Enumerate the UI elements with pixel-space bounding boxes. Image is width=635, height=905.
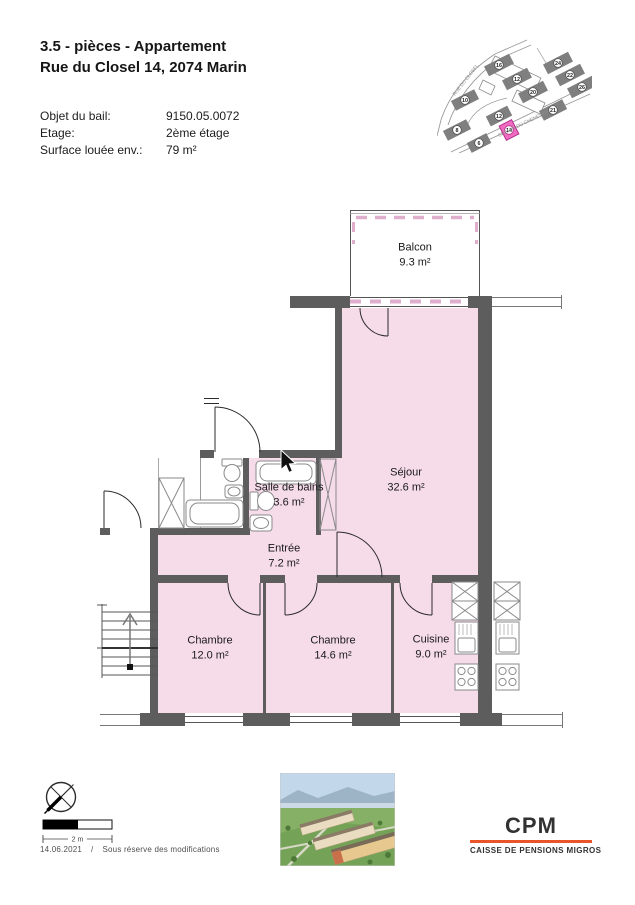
building-aerial-photo [280,773,395,866]
cpm-logo-subtitle: CAISSE DE PENSIONS MIGROS [470,846,592,855]
north-compass-icon [38,779,84,819]
svg-text:8: 8 [456,128,459,134]
svg-text:22: 22 [567,73,573,79]
cpm-logo-rule [470,840,592,843]
bottom-windows [185,713,460,726]
disclaimer: Sous réserve des modifications [102,845,219,854]
staircase [97,604,158,678]
room-label-chambre-2: Chambre 14.6 m² [310,634,355,663]
mouse-cursor [278,449,300,475]
room-label-chambre-1: Chambre 12.0 m² [187,634,232,663]
plan-date: 14.06.2021 [40,845,82,854]
svg-text:21: 21 [550,108,556,114]
floorplan-document-page: 3.5 - pièces - Appartement Rue du Closel… [0,0,635,905]
balcony-window-band [350,296,468,308]
room-label-sejour: Séjour 32.6 m² [387,466,424,495]
date-disclaimer-line: 14.06.2021/Sous réserve des modification… [40,845,229,854]
separator: / [91,845,93,854]
svg-text:24: 24 [555,61,561,67]
site-location-map: 16 12 20 24 22 26 10 12 21 8 6 14 RUE DU… [437,38,592,153]
stairs-up-arrow [123,614,137,668]
svg-text:12: 12 [496,114,502,120]
cpm-logo-name: CPM [470,814,592,838]
room-label-salle-de-bains: Salle de bains 3.6 m² [254,481,323,510]
neighbour-kitchen-fixtures [494,582,520,690]
svg-text:16: 16 [496,63,502,69]
cpm-logo: CPM CAISSE DE PENSIONS MIGROS [470,814,592,855]
svg-text:26: 26 [579,85,585,91]
svg-text:12: 12 [514,77,520,83]
scale-label: 2 m [72,837,84,844]
svg-text:20: 20 [530,90,536,96]
scale-bar: 2 m [40,816,120,846]
room-label-entree: Entrée 7.2 m² [268,542,300,571]
svg-text:6: 6 [478,141,481,147]
room-label-cuisine: Cuisine 9.0 m² [413,633,450,662]
room-label-balcon: Balcon 9.3 m² [398,241,432,270]
svg-text:10: 10 [462,98,468,104]
kitchen-fixtures [452,582,478,690]
